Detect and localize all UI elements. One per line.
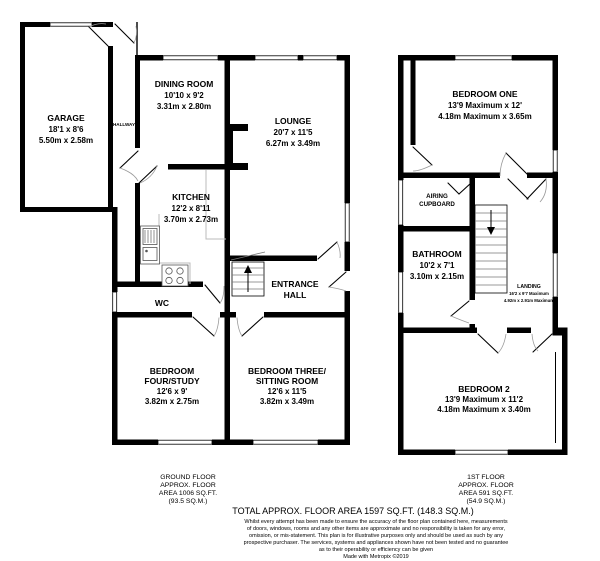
first-floor-area-line1: 1ST FLOOR	[467, 474, 505, 481]
bedroom-three-dims-m: 3.82m x 3.49m	[260, 397, 314, 406]
kitchen-sink-icon	[141, 226, 160, 264]
bedroom-one-dims-ft: 13'9 Maximum x 12'	[448, 101, 522, 110]
bedroom-three-dims-ft: 12'6 x 11'5	[268, 387, 308, 396]
kitchen-dims-m: 3.70m x 2.73m	[164, 215, 218, 224]
disclaimer-line5: as to their operability or efficiency ca…	[319, 547, 433, 553]
garage-label: GARAGE	[47, 113, 85, 123]
ground-floor-labels: GARAGE 18'1 x 8'6 5.50m x 2.58m HALLWAY …	[39, 79, 327, 406]
ground-floor-doors	[89, 24, 346, 336]
hallway-label: HALLWAY	[113, 122, 135, 127]
bathroom-label: BATHROOM	[412, 249, 461, 259]
bedroom-one-label: BEDROOM ONE	[452, 89, 518, 99]
first-floor-plan: BEDROOM ONE 13'9 Maximum x 12' 4.18m Max…	[398, 55, 568, 455]
first-floor-area-line3: AREA 591 SQ.FT.	[459, 490, 514, 497]
first-floor-area-line2: APPROX. FLOOR	[458, 482, 514, 489]
bedroom-one-dims-m: 4.18m Maximum x 3.65m	[438, 112, 531, 121]
airing-cupboard-label-line2: CUPBOARD	[419, 201, 455, 208]
kitchen-dims-ft: 12'2 x 8'11	[172, 204, 212, 213]
bedroom-four-label-line2: FOUR/STUDY	[144, 376, 200, 386]
bedroom-four-label-line1: BEDROOM	[150, 366, 194, 376]
lounge-side-window	[345, 203, 349, 242]
bathroom-window	[399, 272, 403, 313]
entrance-hall-label-line2: HALL	[284, 290, 307, 300]
bathroom-door-swing	[451, 301, 469, 316]
kitchen-fixtures	[141, 170, 227, 286]
lounge-label: LOUNGE	[275, 116, 312, 126]
fireplace-opening	[233, 131, 248, 163]
bedroom-four-door-swing	[193, 317, 214, 336]
eaves-door-swing	[413, 147, 432, 165]
lounge-window-1	[255, 56, 298, 60]
bathroom-dims-ft: 10'2 x 7'1	[420, 261, 455, 270]
first-floor-stairs	[475, 205, 507, 293]
airing-cupboard-label-line1: AIRING	[426, 193, 448, 200]
hall-door-swing	[120, 151, 138, 168]
wc-window	[113, 292, 117, 312]
footer-text: GROUND FLOOR APPROX. FLOOR AREA 1006 SQ.…	[159, 474, 514, 560]
credit-line: Made with Metropix ©2019	[343, 553, 409, 560]
kitchen-label: KITCHEN	[172, 192, 210, 202]
lounge-door-swing	[318, 242, 337, 259]
ground-floor-area-line4: (93.5 SQ.M.)	[169, 498, 208, 505]
bedroom-four-window	[158, 440, 212, 444]
landing-door-swing-2	[527, 179, 546, 199]
airing-cupboard-door-swing	[448, 183, 459, 194]
landing-label: LANDING	[517, 284, 541, 290]
bedroom-two-door-swing-1	[478, 334, 498, 353]
bedroom-four-dims-m: 3.82m x 2.75m	[145, 397, 199, 406]
ground-floor-plan: GARAGE 18'1 x 8'6 5.50m x 2.58m HALLWAY …	[20, 22, 350, 445]
ground-floor-area-line3: AREA 1006 SQ.FT.	[159, 490, 217, 497]
landing-dims-m: 4.92m x 2.91m Maximum	[504, 298, 554, 303]
garage-dims-m: 5.50m x 2.58m	[39, 136, 93, 145]
ground-floor-area-line1: GROUND FLOOR	[160, 474, 216, 481]
airing-side-window	[399, 180, 403, 225]
bedroom-one-side-window	[553, 150, 557, 172]
bathroom-dims-m: 3.10m x 2.15m	[410, 272, 464, 281]
bedroom-one-window	[455, 56, 512, 60]
bedroom-two-door-swing-2	[533, 334, 552, 352]
bedroom-one-door-swing	[506, 153, 527, 174]
bedroom-two-dims-m: 4.18m Maximum x 3.40m	[437, 405, 530, 414]
lounge-dims-ft: 20'7 x 11'5	[274, 128, 314, 137]
dining-room-label: DINING ROOM	[155, 79, 214, 89]
dining-room-dims-m: 3.31m x 2.80m	[157, 102, 211, 111]
bedroom-three-door-swing	[242, 317, 263, 336]
dining-window	[163, 56, 218, 60]
landing-dims-ft: 16'2 x 9'7 Maximum	[509, 291, 549, 296]
floor-plan-page: GARAGE 18'1 x 8'6 5.50m x 2.58m HALLWAY …	[0, 0, 600, 561]
first-floor-area-line4: (54.9 SQ.M.)	[467, 498, 506, 505]
garage-window	[50, 23, 92, 26]
bedroom-three-window	[253, 440, 318, 444]
kitchen-door-swing	[139, 166, 157, 183]
lounge-window-2	[303, 56, 337, 60]
floor-plan-drawing: GARAGE 18'1 x 8'6 5.50m x 2.58m HALLWAY …	[0, 0, 600, 561]
ground-floor-area-line2: APPROX. FLOOR	[160, 482, 216, 489]
bedroom-three-label-line2: SITTING ROOM	[256, 376, 318, 386]
disclaimer-line2: of doors, windows, rooms and any other i…	[247, 526, 506, 532]
bedroom-four-dims-ft: 12'6 x 9'	[157, 387, 188, 396]
wc-label: WC	[155, 298, 169, 308]
disclaimer-line4: prospective purchaser. The services, sys…	[244, 540, 509, 546]
bedroom-two-label: BEDROOM 2	[458, 384, 510, 394]
bedroom-two-window	[455, 450, 508, 454]
front-porch-door-swing	[115, 24, 134, 43]
lounge-dims-m: 6.27m x 3.49m	[266, 139, 320, 148]
landing-window	[553, 253, 557, 297]
entrance-door-swing	[329, 272, 346, 287]
garage-door-swing	[89, 27, 108, 46]
entrance-hall-label-line1: ENTRANCE	[271, 279, 319, 289]
bedroom-three-label-line1: BEDROOM THREE/	[248, 366, 327, 376]
disclaimer-line3: omission, or mis-statement. This plan is…	[249, 533, 503, 539]
dining-room-dims-ft: 10'10 x 9'2	[164, 91, 204, 100]
garage-dims-ft: 18'1 x 8'6	[49, 125, 84, 134]
cooker-hob-icon	[162, 265, 188, 286]
bedroom-two-dims-ft: 13'9 Maximum x 11'2	[445, 395, 524, 404]
landing-door-swing-1	[508, 179, 528, 199]
total-floor-area: TOTAL APPROX. FLOOR AREA 1597 SQ.FT. (14…	[232, 506, 473, 516]
disclaimer-line1: Whilst every attempt has been made to en…	[244, 519, 507, 525]
wc-door-swing	[205, 285, 220, 303]
